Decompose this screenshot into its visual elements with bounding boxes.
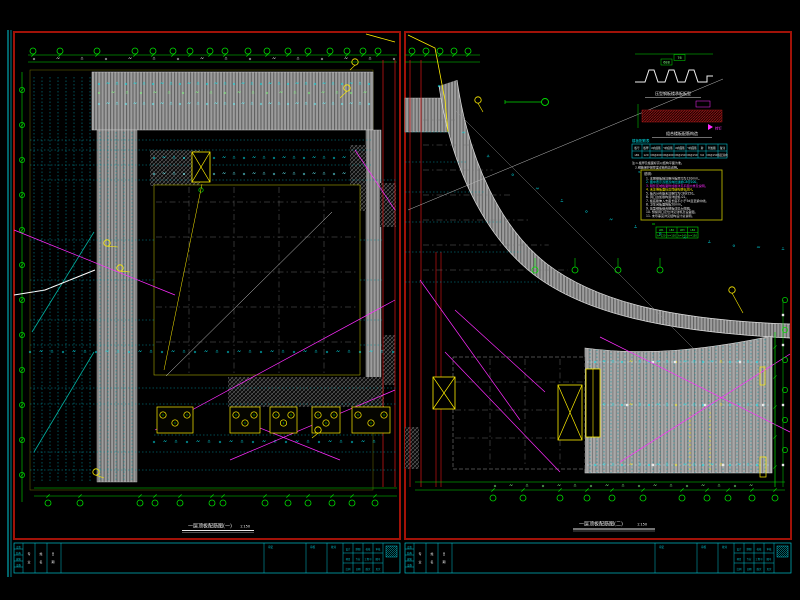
svg-text:专业: 专业 [356, 557, 361, 561]
svg-text:审核: 审核 [701, 545, 707, 549]
svg-text:LB2: LB2 [669, 228, 674, 232]
sheet-a-title: 一层顶板配筋图(一) [188, 523, 232, 530]
hatch-zone [380, 183, 396, 227]
slab-section-detail: 栓钉 组合楼板配筋构造 [638, 101, 722, 138]
svg-text:制图: 制图 [356, 547, 361, 551]
svg-text:版次: 版次 [757, 567, 762, 571]
deck-profile-detail: 688 76 压型钢板楼承板板型 [635, 54, 713, 98]
svg-text:h=120: h=120 [657, 234, 666, 238]
svg-text:专业: 专业 [747, 557, 752, 561]
slab-band-top [92, 72, 373, 130]
svg-text:注:1.板厚及板面标高以结构平面为准。: 注:1.板厚及板面标高以结构平面为准。 [632, 160, 684, 165]
svg-text:姓: 姓 [430, 551, 433, 556]
notes-box: 说明: 1. 本层楼板除注明外板厚均为120mm。2. 图中表示双层双向拉通筋C… [641, 170, 722, 220]
deck-detail-title: 压型钢板楼承板板型 [655, 90, 691, 96]
rebar-table: 板号板厚X向底筋Y向底筋X向面筋Y向面筋跨附加筋备注LB1120C8@200C8… [632, 144, 728, 158]
svg-text:审核: 审核 [376, 547, 381, 551]
svg-text:期: 期 [51, 559, 54, 564]
svg-text:审核: 审核 [310, 545, 316, 549]
section-hatch [642, 110, 722, 122]
svg-text:期: 期 [442, 559, 445, 564]
svg-text:h=150: h=150 [689, 234, 698, 238]
sheet-a: 一层顶板配筋图(一) 1:150 [14, 29, 400, 539]
titleblock-b: 会签结构建筑设备专业姓名日期审定审核校对设计制图校核审核项目专业工程号图号比例日… [405, 543, 791, 573]
svg-text:校对: 校对 [722, 545, 728, 549]
svg-text:页次: 页次 [376, 567, 381, 571]
svg-text:日: 日 [51, 552, 54, 556]
svg-text:附加筋: 附加筋 [708, 146, 716, 150]
curve-edge-outer [457, 80, 790, 324]
svg-text:工程号: 工程号 [364, 557, 372, 561]
svg-text:h=130: h=130 [668, 234, 677, 238]
svg-text:h=140: h=140 [678, 234, 687, 238]
svg-text:双层双向: 双层双向 [717, 153, 728, 157]
svg-text:图号: 图号 [767, 557, 772, 561]
svg-text:比例: 比例 [346, 567, 351, 571]
cad-canvas: 一层顶板配筋图(一) 1:150 688 76 压型钢板楼承板板型 [0, 0, 800, 600]
svg-text:LB4: LB4 [690, 228, 695, 232]
svg-text:板号: 板号 [634, 146, 640, 150]
svg-text:设计: 设计 [346, 547, 351, 551]
svg-text:审定: 审定 [659, 545, 665, 549]
svg-text:LB1: LB1 [659, 228, 664, 232]
sheet-b-scale: 1:150 [637, 523, 647, 527]
slab-band-left [97, 130, 137, 482]
svg-text:页次: 页次 [767, 567, 772, 571]
cad-drawing: 一层顶板配筋图(一) 1:150 688 76 压型钢板楼承板板型 [0, 0, 800, 600]
hatch-zone [383, 335, 395, 385]
deck-dim-a: 688 [663, 61, 669, 65]
svg-text:校核: 校核 [757, 547, 762, 551]
svg-text:设备: 设备 [16, 563, 21, 567]
svg-text:会签: 会签 [16, 545, 21, 549]
legend-table: LB1LB2LB3LB4h=120h=130h=140h=150 [652, 224, 698, 238]
deck-dim-b: 76 [677, 56, 681, 60]
svg-text:名: 名 [430, 559, 433, 564]
svg-text:版次: 版次 [366, 567, 371, 571]
section-arrow [708, 124, 713, 130]
svg-text:会签: 会签 [407, 545, 412, 549]
svg-text:11. 未尽事宜详见结构设计总说明。: 11. 未尽事宜详见结构设计总说明。 [646, 213, 694, 218]
svg-text:C8@200: C8@200 [662, 153, 673, 157]
svg-text:设计: 设计 [737, 547, 742, 551]
svg-text:名: 名 [39, 559, 42, 564]
svg-text:C8@200: C8@200 [650, 153, 661, 157]
section-tag: 栓钉 [715, 126, 722, 131]
svg-text:比例: 比例 [737, 567, 742, 571]
svg-text:专: 专 [27, 551, 30, 556]
svg-text:建筑: 建筑 [16, 557, 21, 561]
svg-text:Y向面筋: Y向面筋 [687, 146, 697, 150]
rebar-table-caption: 楼板配筋表 [632, 138, 650, 143]
svg-text:X向面筋: X向面筋 [675, 146, 685, 150]
hatch-zone [405, 427, 419, 469]
svg-text:设备: 设备 [407, 563, 412, 567]
svg-text:专: 专 [418, 551, 421, 556]
svg-text:校核: 校核 [366, 547, 371, 551]
sheet-b: 688 76 压型钢板楼承板板型 栓钉 组合楼板配筋构造 楼板配筋表 板号板厚X… [405, 32, 791, 539]
deck-profile-line [635, 70, 713, 82]
svg-text:日期: 日期 [356, 567, 361, 571]
svg-text:跨: 跨 [701, 146, 704, 150]
svg-text:C8@150: C8@150 [686, 153, 697, 157]
svg-text:Y向底筋: Y向底筋 [663, 146, 673, 150]
svg-text:LB3: LB3 [680, 228, 685, 232]
sheet-a-scale: 1:150 [240, 525, 250, 529]
svg-text:日期: 日期 [747, 567, 752, 571]
notes-title: 说明: [644, 171, 652, 176]
sheet-b-title: 一层顶板配筋图(二) [579, 521, 623, 528]
titleblock-a: 会签结构建筑设备专业姓名日期审定审核校对设计制图校核审核项目专业工程号图号比例日… [14, 543, 400, 573]
svg-text:X向底筋: X向底筋 [651, 146, 661, 150]
svg-text:工程号: 工程号 [755, 557, 763, 561]
svg-text:结构: 结构 [407, 551, 412, 555]
svg-text:图号: 图号 [376, 557, 381, 561]
svg-text:项目: 项目 [346, 557, 351, 561]
svg-text:2.钢筋保护层厚度详结构总说明。: 2.钢筋保护层厚度详结构总说明。 [635, 164, 680, 169]
svg-text:校对: 校对 [331, 545, 337, 549]
svg-text:C8@150: C8@150 [674, 153, 685, 157]
section-detail-title: 组合楼板配筋构造 [666, 130, 698, 136]
svg-text:120: 120 [644, 153, 649, 157]
svg-text:姓: 姓 [39, 551, 42, 556]
svg-text:板厚: 板厚 [643, 146, 649, 150]
svg-text:LB1: LB1 [635, 153, 640, 157]
svg-text:审核: 审核 [767, 547, 772, 551]
svg-text:项目: 项目 [737, 557, 742, 561]
svg-text:业: 业 [418, 559, 421, 564]
svg-text:3.6: 3.6 [700, 153, 704, 157]
svg-text:C8@150: C8@150 [706, 153, 717, 157]
svg-text:日: 日 [442, 552, 445, 556]
svg-text:结构: 结构 [16, 551, 21, 555]
curved-slab-band [439, 80, 790, 338]
svg-text:制图: 制图 [747, 547, 752, 551]
svg-text:建筑: 建筑 [407, 557, 412, 561]
svg-text:备注: 备注 [720, 146, 726, 150]
svg-text:审定: 审定 [268, 545, 274, 549]
hatch-zone [228, 377, 384, 407]
svg-text:业: 业 [27, 559, 30, 564]
courtyard-a [154, 185, 360, 375]
